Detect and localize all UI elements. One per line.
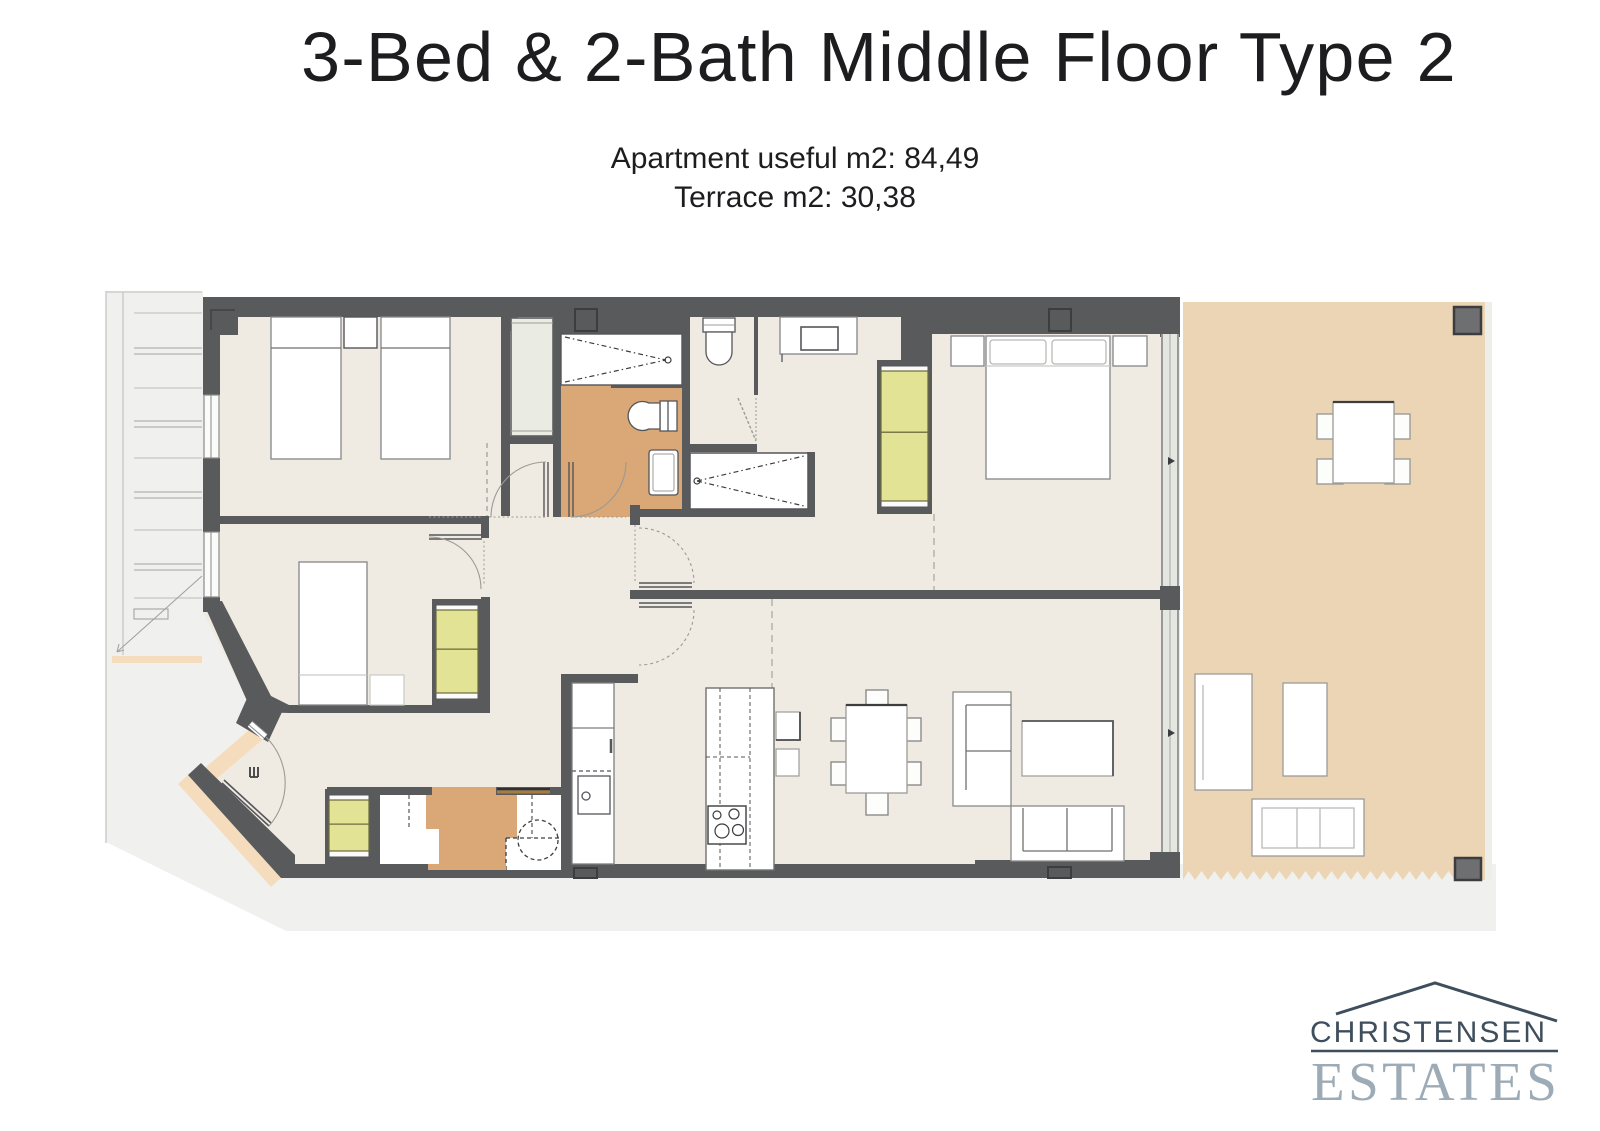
svg-text:CHRISTENSEN: CHRISTENSEN [1310,1016,1547,1049]
svg-text:ESTATES: ESTATES [1311,1051,1560,1112]
